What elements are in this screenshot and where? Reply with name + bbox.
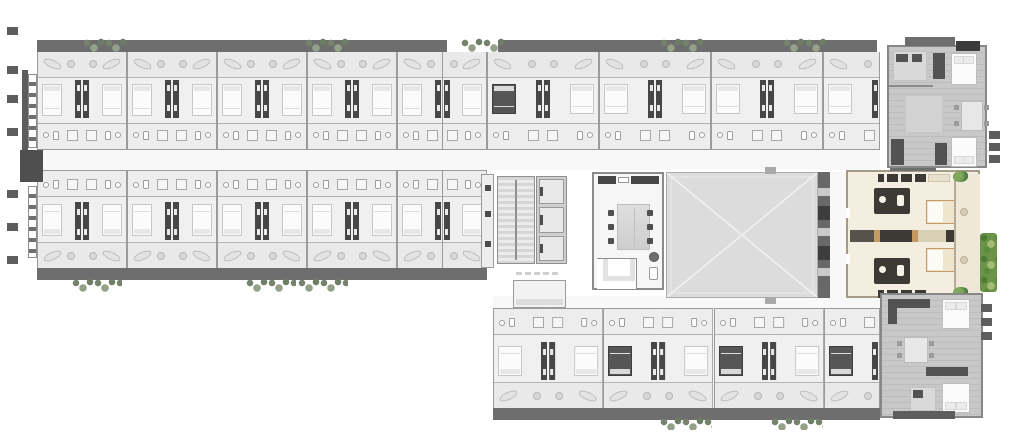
guest-room <box>82 170 127 268</box>
side-table-icon <box>67 252 75 260</box>
wardrobe-core <box>549 342 555 380</box>
bed-icon <box>716 84 740 114</box>
sink-icon <box>605 132 611 138</box>
wardrobe-core <box>872 80 878 118</box>
guest-room <box>711 52 767 150</box>
chair-icon <box>954 105 959 110</box>
shower-icon <box>157 130 168 141</box>
room-interior <box>767 78 822 123</box>
room-balcony <box>262 52 306 78</box>
guest-room <box>217 52 262 150</box>
room-interior <box>488 78 543 123</box>
toilet-icon <box>233 131 239 140</box>
bed-icon <box>926 200 956 224</box>
lounge-chair-icon <box>101 248 122 263</box>
toilet-icon <box>897 195 904 206</box>
room-bathroom <box>172 123 216 149</box>
room-balcony <box>308 52 352 78</box>
room-bathroom <box>352 171 396 197</box>
wardrobe-core <box>656 80 662 118</box>
highlighted-unit[interactable] <box>846 170 980 298</box>
sink-icon <box>591 320 597 326</box>
chair-icon <box>647 210 653 216</box>
void-cross-lines <box>667 173 817 297</box>
room-bathroom <box>715 309 769 335</box>
room-bathroom <box>308 123 352 149</box>
meeting-table <box>617 204 650 250</box>
room-balcony <box>488 52 543 78</box>
toilet-icon <box>323 180 329 189</box>
guest-room <box>172 170 217 268</box>
entry-door-gap <box>846 208 850 218</box>
room-interior <box>443 78 486 123</box>
service-pantry <box>481 174 494 268</box>
room-bathroom <box>38 123 82 149</box>
room-bathroom <box>398 123 442 149</box>
balcony-table-icon <box>960 256 968 264</box>
shower-icon <box>552 317 563 328</box>
toilet-icon <box>413 131 419 140</box>
elevator-bank <box>536 176 567 264</box>
shower-icon <box>356 130 367 141</box>
toilet-icon <box>692 318 698 327</box>
top-row-wide <box>487 52 880 150</box>
room-balcony <box>172 52 216 78</box>
balcony-table-icon <box>960 208 968 216</box>
hvac-unit-icon <box>981 304 992 312</box>
lounge-chair-icon <box>101 56 122 71</box>
column-tab <box>765 167 776 174</box>
toilet-icon <box>285 131 291 140</box>
guest-room <box>397 52 442 150</box>
side-table-icon <box>247 60 255 68</box>
toilet-icon <box>375 180 381 189</box>
bed-icon <box>829 346 853 376</box>
guest-room <box>487 52 543 150</box>
shower-icon <box>247 179 258 190</box>
guest-room <box>442 52 487 150</box>
wall-opening <box>818 188 830 196</box>
room-balcony <box>767 52 822 78</box>
elevator-door-icon <box>540 215 543 224</box>
chair-icon <box>608 238 614 244</box>
bed-icon <box>492 84 516 114</box>
chair-icon <box>929 341 934 346</box>
elevator-car <box>539 207 564 232</box>
toilet-icon <box>195 180 201 189</box>
counter-icon <box>618 177 629 183</box>
bed-icon <box>462 204 482 236</box>
side-table-icon <box>427 60 435 68</box>
wardrobe-core <box>353 202 359 240</box>
wardrobe-core <box>444 80 450 118</box>
wardrobe-core <box>165 202 171 240</box>
room-interior <box>604 335 658 382</box>
wardrobe-core <box>536 80 542 118</box>
toilet-icon <box>689 131 695 140</box>
guest-room <box>397 170 442 268</box>
sink-icon <box>830 320 836 326</box>
room-bathroom <box>38 171 82 197</box>
bed-icon <box>926 248 956 272</box>
toilet-icon <box>323 131 329 140</box>
guest-room <box>307 52 352 150</box>
shower-icon <box>86 179 97 190</box>
lounge-chair-icon <box>402 56 423 71</box>
bed-icon <box>570 84 594 114</box>
apartment-bathroom <box>910 387 936 411</box>
room-bathroom <box>82 123 126 149</box>
room-bathroom <box>604 309 658 335</box>
toilet-icon <box>53 180 59 189</box>
toilet-icon <box>143 131 149 140</box>
wardrobe-core <box>345 202 351 240</box>
vanity-icon <box>896 54 908 62</box>
side-table-icon <box>89 252 97 260</box>
bathroom-core <box>874 188 910 214</box>
guest-room <box>603 308 658 408</box>
room-bathroom <box>712 123 767 149</box>
lounge-chair-icon <box>281 56 302 71</box>
room-interior <box>262 78 306 123</box>
side-table-icon <box>359 252 367 260</box>
wardrobe-core <box>353 80 359 118</box>
appliance-icon <box>485 211 491 217</box>
gallery-wall <box>818 172 830 298</box>
wardrobe-core <box>760 80 766 118</box>
bed-icon <box>942 299 970 329</box>
room-interior <box>769 335 823 382</box>
bathroom-core <box>874 258 910 284</box>
shower-icon <box>67 130 78 141</box>
room-bathroom <box>352 123 396 149</box>
toilet-icon <box>413 180 419 189</box>
bed-icon <box>828 84 852 114</box>
lounge-chair-icon <box>492 56 513 71</box>
toilet-icon <box>465 131 471 140</box>
shower-icon <box>533 317 544 328</box>
sink-icon <box>829 132 835 138</box>
shower-icon <box>337 130 348 141</box>
wardrobe-core <box>83 202 89 240</box>
shower-icon <box>67 179 78 190</box>
wall-opening <box>818 228 830 236</box>
sink-icon <box>609 320 615 326</box>
room-bathroom <box>543 123 598 149</box>
room-interior <box>494 335 548 382</box>
sink-icon <box>587 132 593 138</box>
hvac-unit-icon <box>989 143 1000 151</box>
room-interior <box>82 78 126 123</box>
room-bathroom <box>488 123 543 149</box>
vanity-icon <box>913 390 923 398</box>
bed-icon <box>312 84 332 116</box>
shower-icon <box>659 130 670 141</box>
room-interior <box>825 335 879 382</box>
side-table-icon <box>752 60 760 68</box>
room-bathroom <box>655 123 710 149</box>
planter-icon <box>771 416 823 430</box>
guest-room <box>823 52 880 150</box>
toilet-icon <box>730 318 736 327</box>
side-table-icon <box>774 60 782 68</box>
room-bathroom <box>769 309 823 335</box>
chair-icon <box>647 224 653 230</box>
room-balcony <box>604 382 658 408</box>
bed-icon <box>402 204 422 236</box>
hvac-unit-icon <box>989 155 1000 163</box>
apartment-pergola <box>956 41 980 51</box>
side-table-icon <box>864 392 872 400</box>
column-tab <box>765 297 776 304</box>
sink-icon <box>223 132 229 138</box>
side-table-icon <box>754 392 762 400</box>
room-balcony <box>655 52 710 78</box>
entry-door-gap <box>846 254 850 264</box>
west-balcony-dividers <box>28 74 37 148</box>
room-balcony <box>548 382 602 408</box>
lounge-chair-icon <box>719 388 740 403</box>
common-room <box>592 172 664 290</box>
lounge-chair-icon <box>191 56 212 71</box>
wardrobe-core <box>83 80 89 118</box>
guest-room <box>127 170 172 268</box>
sink-icon <box>115 132 121 138</box>
chair-icon <box>897 341 902 346</box>
toilet-icon <box>897 265 904 276</box>
side-table-icon <box>179 60 187 68</box>
sink-icon <box>133 132 139 138</box>
hvac-unit-icon <box>7 27 18 35</box>
sink-icon <box>493 132 499 138</box>
planter-icon <box>660 37 704 53</box>
planter-icon <box>461 37 505 53</box>
threshold-dashes <box>516 272 558 275</box>
room-balcony <box>128 242 172 268</box>
shower-icon <box>266 179 277 190</box>
chair-icon <box>984 121 989 126</box>
wardrobe-core <box>173 80 179 118</box>
wardrobe-core <box>544 80 550 118</box>
sink-icon <box>205 182 211 188</box>
room-balcony <box>658 382 712 408</box>
room-bathroom <box>443 171 486 197</box>
shower-icon <box>86 130 97 141</box>
bed-icon <box>682 84 706 114</box>
elevator-door-icon <box>540 187 543 196</box>
toilet-icon <box>912 54 922 62</box>
side-table-icon <box>337 252 345 260</box>
room-balcony <box>825 382 879 408</box>
room-balcony <box>38 52 82 78</box>
bed-icon <box>795 346 819 376</box>
kitchen-counter <box>891 139 904 165</box>
shower-icon <box>528 130 539 141</box>
apartment-north-east <box>887 45 987 168</box>
kitchen-counter <box>888 308 897 324</box>
guest-room <box>37 170 82 268</box>
bed-icon <box>685 346 709 376</box>
bed-icon <box>132 204 152 236</box>
toilet-icon <box>233 180 239 189</box>
room-interior <box>38 197 82 242</box>
bed-icon <box>719 346 743 376</box>
shower-icon <box>752 130 763 141</box>
lounge-chair-icon <box>604 56 625 71</box>
lounge-chair-icon <box>132 56 153 71</box>
elevator-door-icon <box>540 244 543 253</box>
room-interior <box>398 78 442 123</box>
wardrobe-core <box>435 202 441 240</box>
toilet-icon <box>285 180 291 189</box>
wardrobe-core <box>648 80 654 118</box>
lounge-chair-icon <box>797 56 818 71</box>
room-bathroom <box>262 171 306 197</box>
bottom-row-standard <box>37 170 487 268</box>
dining-table <box>904 337 928 363</box>
appliance-icon <box>485 185 491 191</box>
interior-wall <box>889 85 933 87</box>
bottom-wing-row <box>493 308 880 408</box>
toilet-icon <box>581 318 587 327</box>
room-bathroom <box>82 171 126 197</box>
lounge-chair-icon <box>132 248 153 263</box>
wardrobe-core <box>173 202 179 240</box>
bed-icon <box>282 204 302 236</box>
shower-icon <box>754 317 765 328</box>
room-bathroom <box>128 123 172 149</box>
room-balcony <box>600 52 655 78</box>
bed-icon <box>192 84 212 116</box>
toilet-icon <box>53 131 59 140</box>
toilet-icon <box>577 131 583 140</box>
side-table-icon <box>157 252 165 260</box>
room-bathroom <box>218 171 262 197</box>
living-rug <box>905 95 943 133</box>
room-interior <box>128 78 172 123</box>
shower-icon <box>356 179 367 190</box>
room-balcony <box>443 242 486 268</box>
wardrobe-core <box>263 80 269 118</box>
room-interior <box>38 78 82 123</box>
toilet-icon <box>195 131 201 140</box>
wardrobe-core <box>872 342 878 380</box>
bed-icon <box>222 204 242 236</box>
bed-icon <box>794 84 818 114</box>
bed-icon <box>372 204 392 236</box>
sink-icon <box>879 266 886 273</box>
room-interior <box>128 197 172 242</box>
lounge-chair-icon <box>461 56 482 71</box>
wardrobe-core <box>651 342 657 380</box>
side-table-icon <box>427 252 435 260</box>
room-interior <box>824 78 879 123</box>
toilet-icon <box>840 318 846 327</box>
room-balcony <box>715 382 769 408</box>
sink-icon <box>812 320 818 326</box>
room-interior <box>82 197 126 242</box>
room-interior <box>655 78 710 123</box>
room-interior <box>352 78 396 123</box>
lounge-chair-icon <box>222 56 243 71</box>
side-table-icon <box>665 392 673 400</box>
chair-icon <box>608 224 614 230</box>
sink-icon <box>699 132 705 138</box>
sink-icon <box>43 132 49 138</box>
wardrobe-core <box>935 143 947 165</box>
main-corridor <box>37 150 880 170</box>
lounge-chair-icon <box>461 248 482 263</box>
bed-icon <box>372 84 392 116</box>
toilet-icon <box>465 180 471 189</box>
toilet-icon <box>801 131 807 140</box>
room-interior <box>308 197 352 242</box>
room-balcony <box>128 52 172 78</box>
apartment-bathroom <box>893 51 927 81</box>
wardrobe-core <box>659 342 665 380</box>
hvac-unit-icon <box>981 318 992 326</box>
planter-icon <box>953 171 968 182</box>
guest-room <box>37 52 82 150</box>
sink-icon <box>295 182 301 188</box>
hvac-unit-icon <box>981 332 992 340</box>
toilet-icon <box>105 131 111 140</box>
room-balcony <box>769 382 823 408</box>
room-balcony <box>38 242 82 268</box>
sink-icon <box>115 182 121 188</box>
toilet-icon <box>503 131 509 140</box>
guest-room <box>307 170 352 268</box>
hvac-unit-icon <box>7 256 18 264</box>
room-bathroom <box>172 171 216 197</box>
shower-icon <box>337 179 348 190</box>
side-table-icon <box>533 392 541 400</box>
service-room <box>513 280 566 308</box>
sink-icon <box>811 132 817 138</box>
kitchen-island <box>926 367 968 376</box>
side-table-icon <box>640 60 648 68</box>
room-balcony <box>352 52 396 78</box>
shower-icon <box>640 130 651 141</box>
wardrobe-core <box>768 80 774 118</box>
sink-icon <box>702 320 708 326</box>
guest-room <box>352 170 397 268</box>
bed-icon <box>42 84 62 116</box>
room-balcony <box>218 52 262 78</box>
lounge-chair-icon <box>798 388 819 403</box>
side-table-icon <box>643 392 651 400</box>
lounge-chair-icon <box>688 388 709 403</box>
apartment-balcony-band <box>893 411 955 419</box>
sink-icon <box>313 132 319 138</box>
guest-room <box>262 170 307 268</box>
bed-icon <box>608 346 632 376</box>
side-table-icon <box>67 60 75 68</box>
pantry-nook <box>597 258 637 289</box>
planter-icon <box>246 277 296 292</box>
balcony-hedge <box>980 233 997 292</box>
room-balcony <box>218 242 262 268</box>
toilet-icon <box>619 318 625 327</box>
chair-icon <box>929 353 934 358</box>
west-balcony-dividers <box>28 186 37 258</box>
room-balcony <box>494 382 548 408</box>
bed-icon <box>42 204 62 236</box>
room-interior <box>443 197 486 242</box>
duct-block <box>818 206 830 220</box>
room-interior <box>712 78 767 123</box>
toilet-icon <box>802 318 808 327</box>
